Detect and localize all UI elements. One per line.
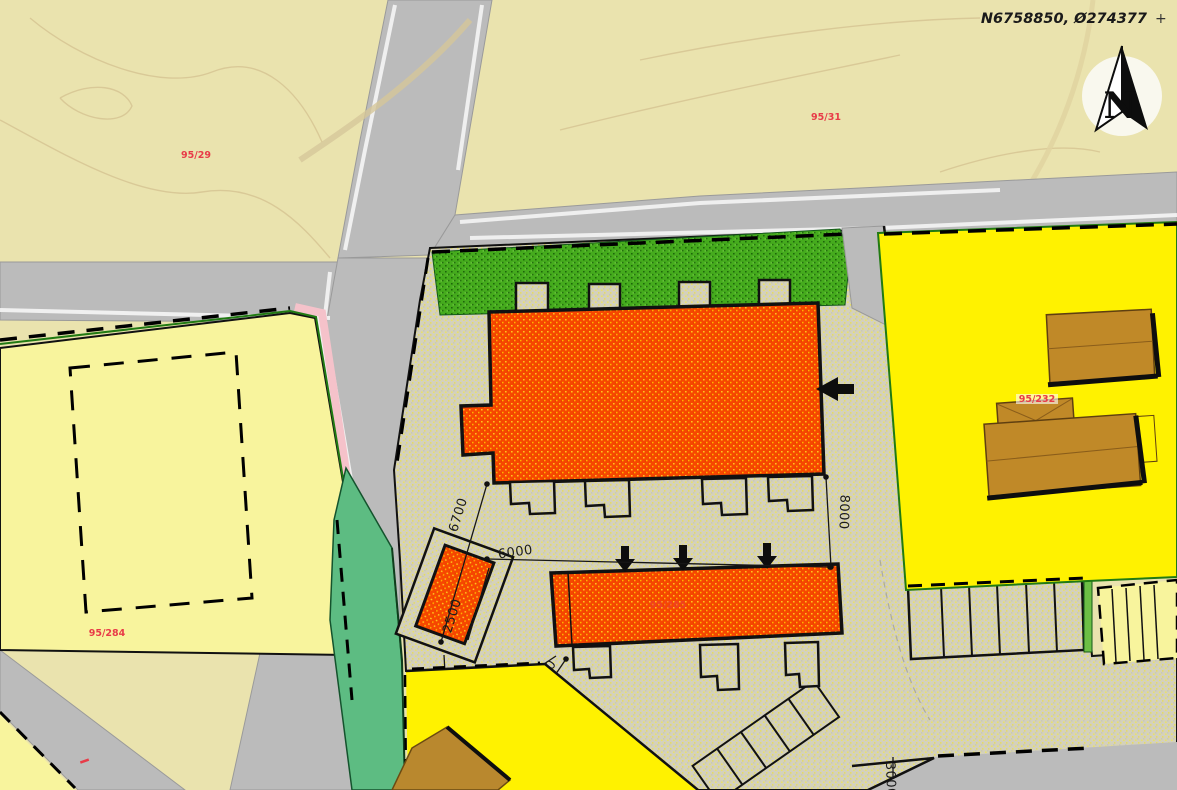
building-main — [461, 303, 824, 483]
building-brown-upper — [1044, 309, 1159, 385]
parcel-label-95-29: 95/29 — [181, 150, 211, 161]
building-lower — [551, 564, 842, 646]
site-plan-viewport[interactable]: 95/285 6700 6000 8000 2500 7500 11400 29… — [0, 0, 1177, 790]
site-plan-canvas[interactable]: 95/285 6700 6000 8000 2500 7500 11400 29… — [0, 0, 1177, 790]
parking-far-east — [1098, 580, 1177, 664]
parcel-label-95-31: 95/31 — [811, 112, 841, 123]
green-verge — [1084, 578, 1092, 652]
parcel-label-95-285: 95/285 — [650, 600, 687, 611]
parcel-label-95-284: 95/284 — [89, 628, 126, 639]
parcel-east-group: 95/232 — [878, 222, 1177, 590]
parcel-label-95-232: 95/232 — [1019, 394, 1056, 405]
dim-label-3000: 3000 — [882, 762, 898, 790]
coordinate-readout: N6758850, Ø274377 — [981, 11, 1148, 27]
crosshair-marker-icon: + — [1155, 11, 1167, 27]
dim-label-8000: 8000 — [835, 494, 851, 530]
north-letter: N — [1104, 85, 1137, 127]
